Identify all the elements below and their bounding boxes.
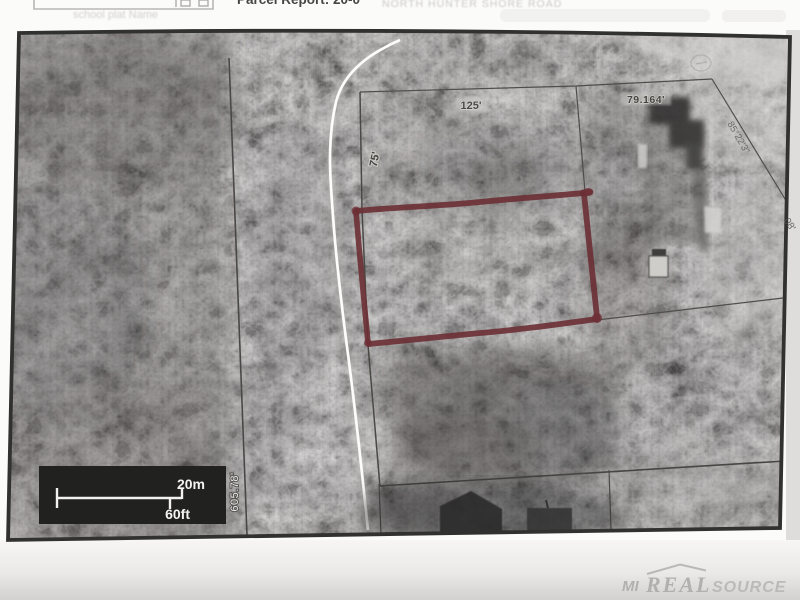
- svg-text:MI: MI: [622, 578, 639, 595]
- svg-text:60ft: 60ft: [165, 506, 190, 522]
- svg-text:NORTH HUNTER SHORE ROAD: NORTH HUNTER SHORE ROAD: [382, 0, 562, 10]
- svg-text:605.78': 605.78': [229, 472, 241, 511]
- svg-text:79.164': 79.164': [627, 94, 665, 106]
- svg-text:Parcel Report: 20-0: Parcel Report: 20-0: [237, 0, 360, 7]
- svg-text:school plat Name: school plat Name: [73, 9, 158, 21]
- svg-text:20m: 20m: [177, 476, 205, 492]
- svg-text:REAL: REAL: [645, 572, 711, 597]
- svg-text:SOURCE: SOURCE: [712, 579, 787, 596]
- svg-text:125': 125': [461, 100, 482, 112]
